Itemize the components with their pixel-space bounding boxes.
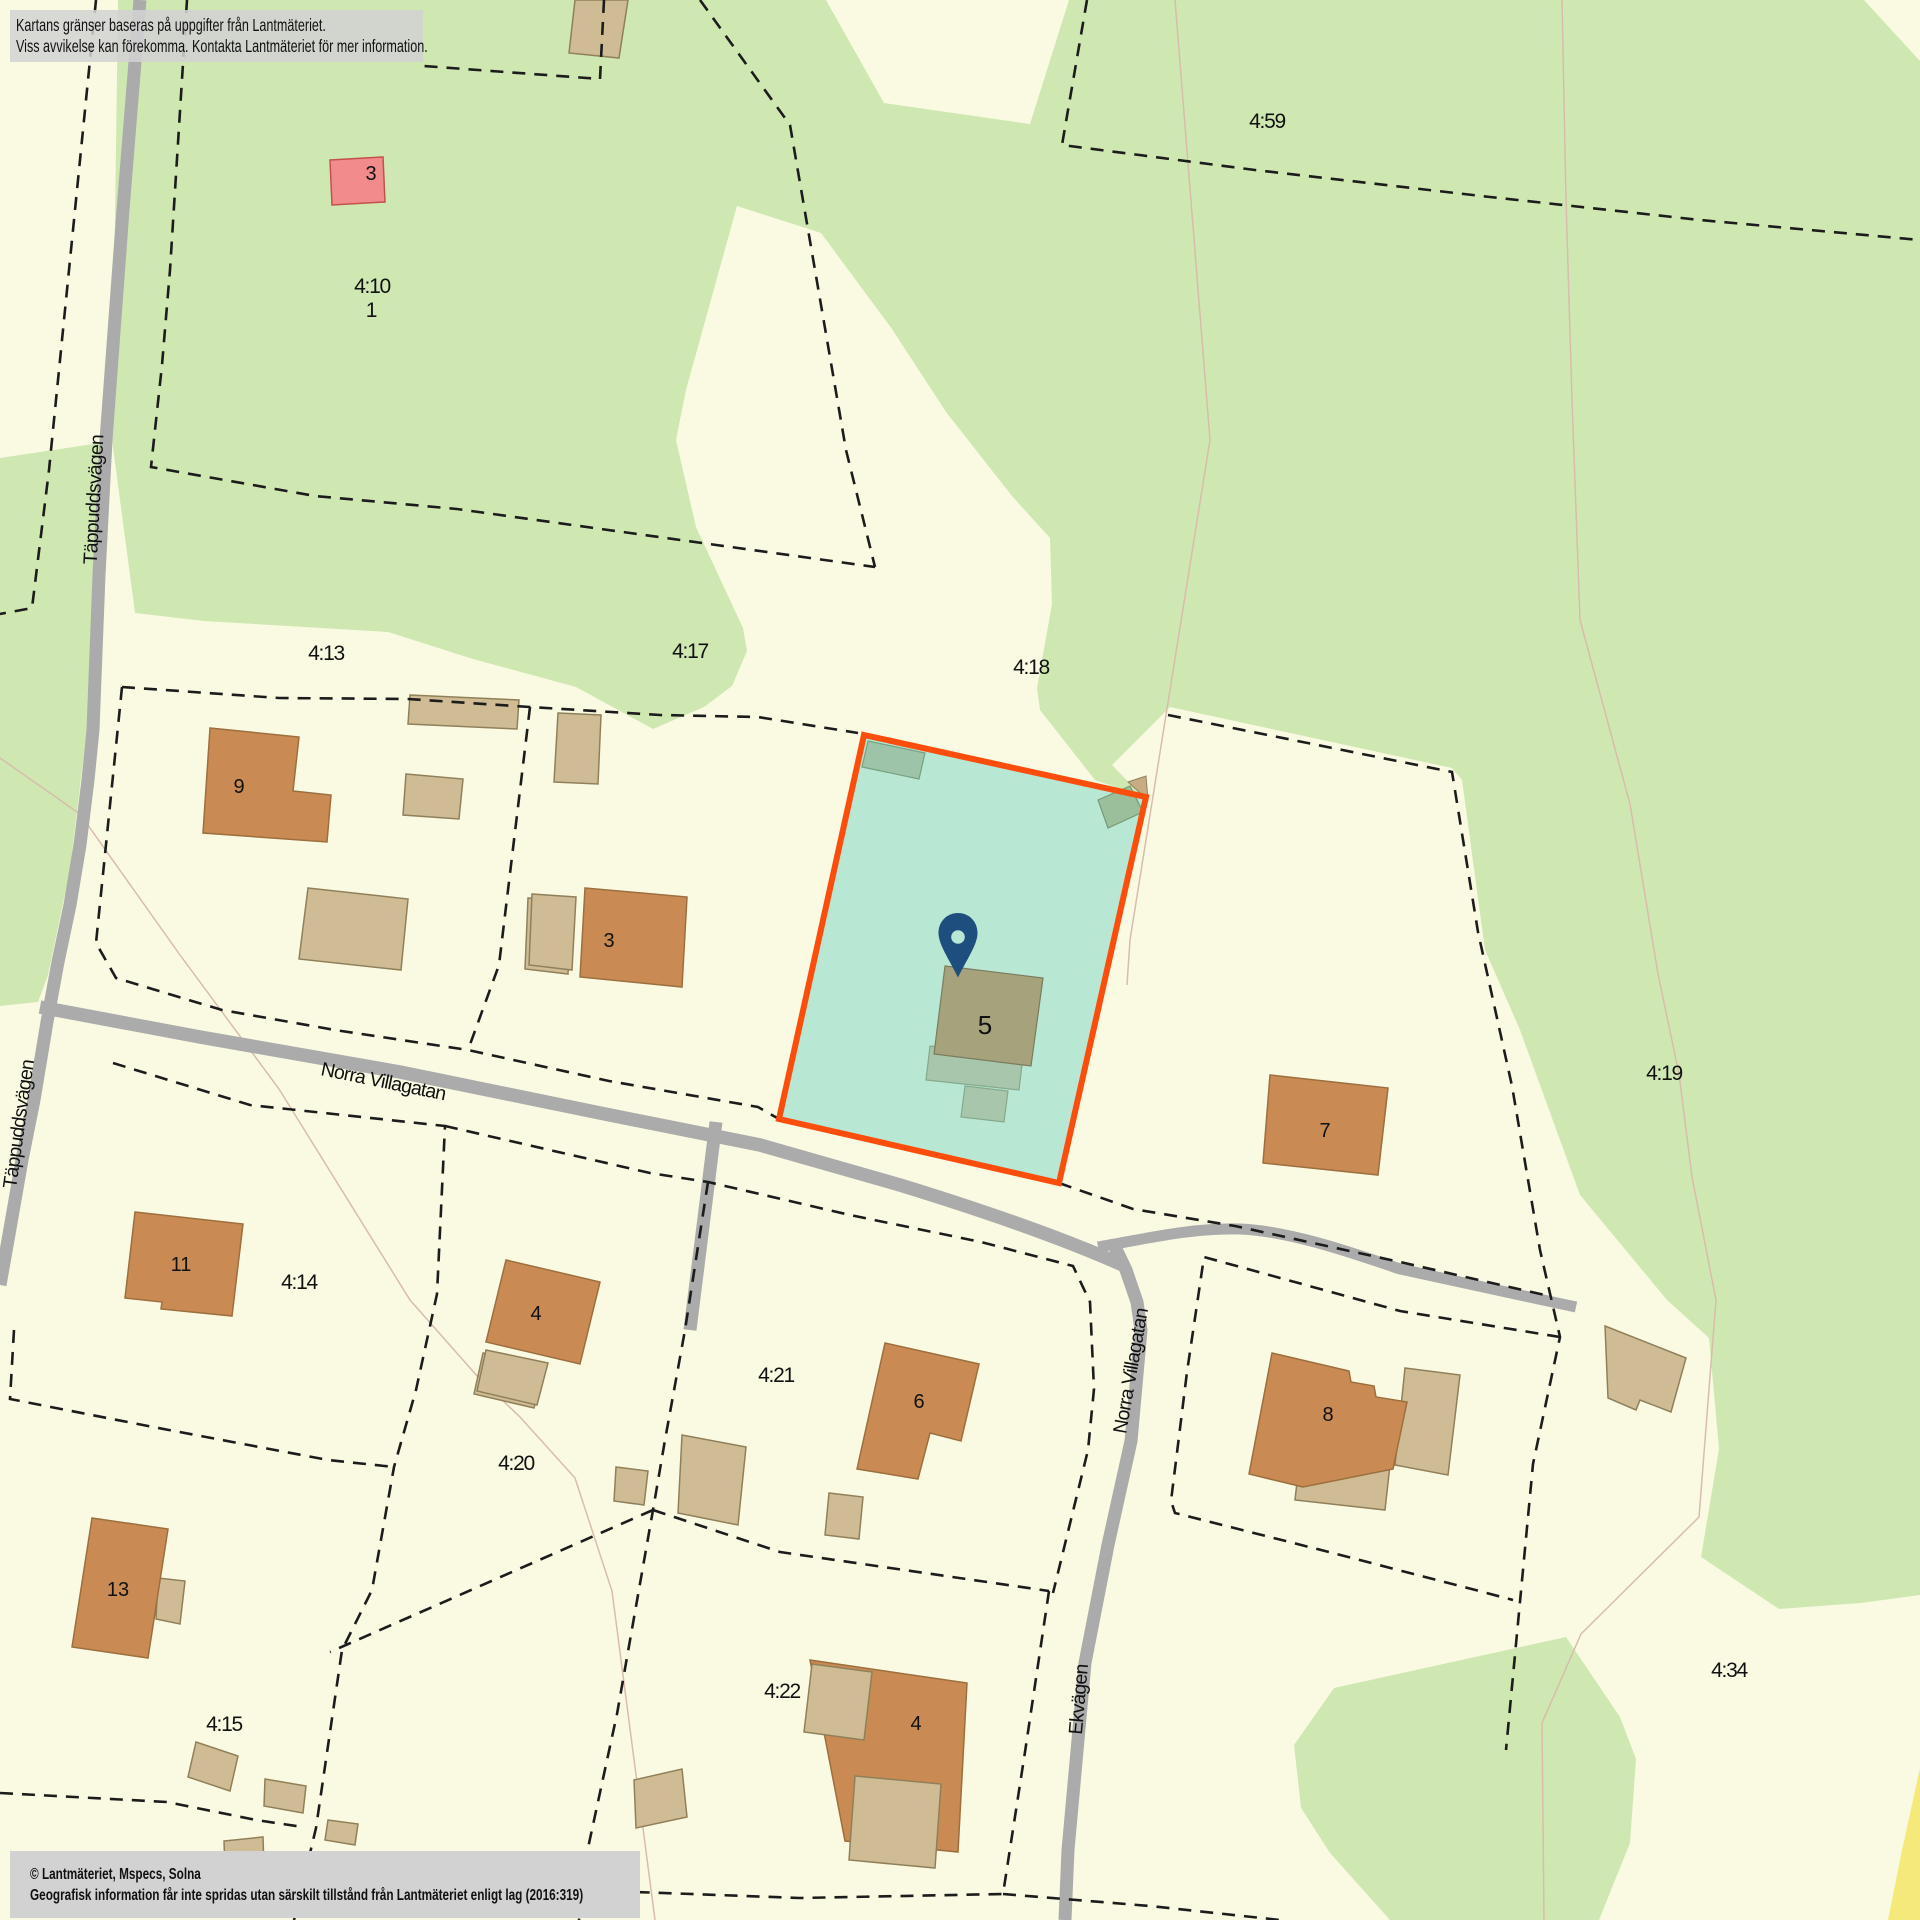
svg-text:11: 11 [171,1254,192,1276]
svg-text:8: 8 [1322,1404,1333,1426]
svg-text:3: 3 [365,163,376,185]
svg-text:4:10: 4:10 [354,275,390,298]
svg-text:Geografisk information får int: Geografisk information får inte spridas … [30,1886,583,1903]
svg-text:4:20: 4:20 [498,1452,534,1475]
svg-text:Kartans gränser baseras på upp: Kartans gränser baseras på uppgifter frå… [16,16,326,36]
svg-text:4:59: 4:59 [1249,110,1285,133]
svg-text:13: 13 [107,1579,129,1601]
svg-text:3: 3 [603,930,614,952]
svg-text:4:18: 4:18 [1013,656,1049,679]
svg-text:1: 1 [366,299,377,322]
svg-text:4: 4 [530,1303,541,1325]
svg-text:7: 7 [1319,1120,1330,1142]
svg-text:4:15: 4:15 [206,1713,242,1736]
svg-text:Viss avvikelse kan förekomma.: Viss avvikelse kan förekomma. Kontakta L… [16,37,428,57]
svg-text:4:17: 4:17 [672,640,708,663]
svg-text:© Lantmäteriet, Mspecs, Solna: © Lantmäteriet, Mspecs, Solna [30,1865,201,1882]
svg-text:6: 6 [913,1391,924,1413]
svg-text:4: 4 [910,1713,921,1735]
svg-text:4:34: 4:34 [1711,1659,1748,1682]
svg-text:4:21: 4:21 [758,1364,794,1387]
svg-text:5: 5 [978,1010,992,1040]
svg-text:4:14: 4:14 [281,1271,318,1294]
svg-text:9: 9 [233,776,244,798]
svg-text:4:22: 4:22 [764,1680,800,1703]
svg-text:4:13: 4:13 [308,642,344,665]
svg-text:4:19: 4:19 [1646,1062,1682,1085]
